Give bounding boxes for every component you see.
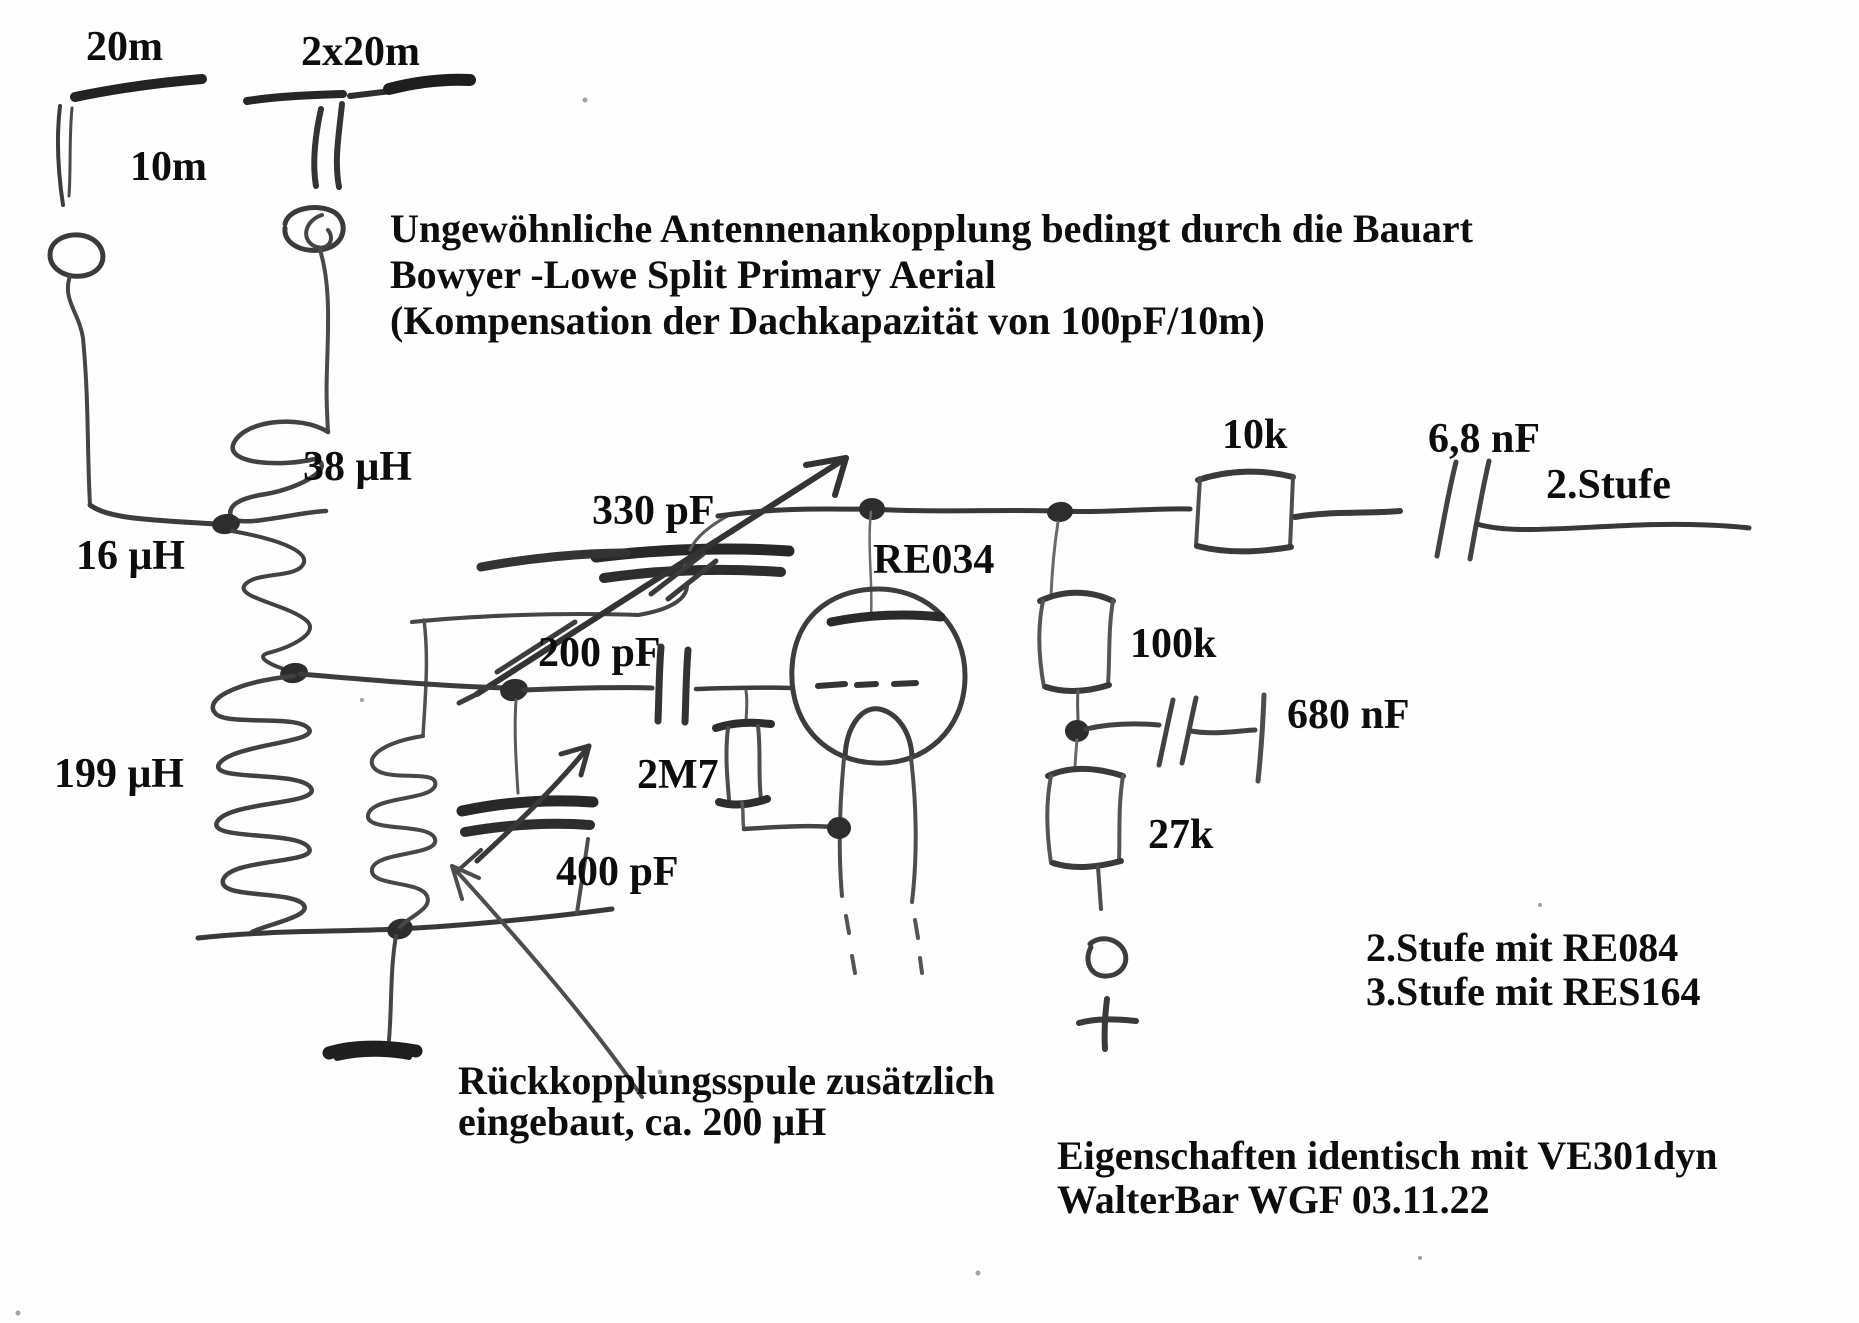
coil-199uH-winding (213, 676, 312, 932)
res-2M7-wire-to-cathode (744, 826, 832, 829)
scanned-schematic-page: 20m 2x20m 10m Ungewöhnliche Antennenanko… (0, 0, 1859, 1323)
res-10k-right (1290, 477, 1293, 548)
cap-200pF-plate-right (685, 650, 688, 722)
res-10k-left (1196, 478, 1200, 546)
junction-dot (860, 499, 884, 519)
title-block: Ungewöhnliche Antennenankopplung bedingt… (390, 206, 1473, 344)
label-res-2M7: 2M7 (637, 754, 719, 796)
label-coil-38uH: 38 μH (303, 446, 412, 488)
label-antenna-20m: 20m (86, 26, 163, 68)
title-line-2: Bowyer -Lowe Split Primary Aerial (390, 252, 1473, 298)
junction-dot (828, 818, 850, 838)
insulator-right-curl (306, 215, 331, 248)
cap-400pF-plate-bottom (465, 824, 590, 832)
res-27k-right (1119, 776, 1123, 861)
cap-400pF-lead-top (515, 700, 518, 793)
label-cap-680nF: 680 nF (1287, 694, 1410, 736)
res-2M7-cap-top (716, 723, 771, 728)
anode-lead (870, 512, 872, 616)
paper-speck (16, 1311, 21, 1316)
paper-speck (1538, 903, 1542, 907)
insulator-left-icon (50, 235, 103, 276)
title-line-1: Ungewöhnliche Antennenankopplung bedingt… (390, 206, 1473, 252)
feedback-coil-note: Rückkopplungsspule zusätzlich eingebaut,… (458, 1060, 995, 1142)
paper-speck (976, 1271, 981, 1276)
feedback-note-line-1: Rückkopplungsspule zusätzlich (458, 1060, 995, 1101)
filament-leg-dashes (846, 916, 922, 973)
tube-filament (845, 709, 912, 758)
stage-tubes-note: 2.Stufe mit RE084 3.Stufe mit RES164 (1366, 926, 1700, 1014)
label-res-10k: 10k (1222, 414, 1287, 456)
label-cap-200pF: 200 pF (538, 632, 661, 674)
battery-terminal-icon (1088, 939, 1126, 976)
filament-leg-right (911, 758, 916, 902)
res-27k-left (1047, 776, 1051, 863)
antenna-20m-leadin (68, 276, 90, 505)
antenna-split-stroke-2 (337, 104, 342, 187)
feedback-coil-winding (368, 736, 436, 927)
antenna-2x20m-bar-right (389, 80, 470, 89)
res-2M7-lead-bottom (742, 803, 744, 829)
label-antenna-2x20m: 2x20m (301, 31, 420, 73)
cap-680nF-wire-left (1086, 724, 1159, 729)
label-tube-RE034: RE034 (873, 539, 994, 581)
battery-plus-icon (1079, 999, 1136, 1049)
res-10k-top (1198, 472, 1293, 480)
res-100k-left (1039, 601, 1044, 687)
junction-dot (1047, 501, 1073, 522)
grid-wire-left (300, 674, 506, 688)
res-2M7-side-right (758, 726, 761, 799)
antenna-20m-leadin-bend (90, 505, 216, 524)
label-antenna-10m: 10m (130, 146, 207, 188)
coil-16uH-winding (232, 531, 310, 671)
title-line-3: (Kompensation der Dachkapazität von 100p… (390, 298, 1473, 344)
label-cap-400pF: 400 pF (556, 851, 679, 893)
res-2M7-side-left (726, 728, 729, 799)
label-cap-6n8: 6,8 nF (1428, 418, 1540, 460)
feedback-note-line-2: eingebaut, ca. 200 μH (458, 1101, 995, 1142)
stage2-tube-note: 2.Stufe mit RE084 (1366, 926, 1700, 970)
ground-bar-icon-2 (337, 1054, 409, 1058)
label-coil-16uH: 16 μH (76, 535, 185, 577)
cap-680nF-symbol (1086, 695, 1264, 781)
label-cap-330pF: 330 pF (592, 490, 715, 532)
antenna-20m-downlead-2 (69, 108, 72, 196)
wire-to-stage2 (1477, 524, 1749, 530)
res-27k-symbol (1047, 740, 1136, 1049)
stage3-tube-note: 3.Stufe mit RES164 (1366, 970, 1700, 1014)
res-100k-lead-top (1051, 522, 1058, 596)
label-stage2-out: 2.Stufe (1546, 464, 1671, 506)
antenna-split-stroke-1 (314, 109, 321, 186)
feedback-coil-lead (423, 620, 426, 736)
antenna-20m-wire-bar (75, 79, 202, 97)
res-27k-lead-bottom (1098, 867, 1101, 909)
antenna-20m-downlead (58, 106, 63, 205)
cap-400pF-plate-top (462, 801, 593, 811)
res-100k-right (1108, 601, 1113, 684)
signature-note: WalterBar WGF 03.11.22 (1057, 1178, 1717, 1222)
paper-speck (360, 698, 364, 702)
cap-680nF-wire-right (1191, 730, 1255, 733)
cap-6n8-plate-right (1470, 461, 1489, 559)
antenna-2x20m-leadin (320, 250, 328, 432)
grid-wire-mid (524, 688, 652, 690)
paper-speck (1418, 1256, 1422, 1260)
ground-branch (198, 909, 612, 1058)
res-100k-symbol (1039, 522, 1113, 741)
tube-RE034-symbol (696, 589, 965, 973)
cap-6n8-plate-left (1437, 462, 1456, 556)
antenna-2x20m-bar-left (247, 94, 343, 101)
ground-lead (389, 936, 396, 1040)
label-res-27k: 27k (1148, 814, 1213, 856)
cap-680nF-plate-left (1159, 700, 1173, 765)
coil-16uH-symbol (232, 531, 310, 684)
credit-note: Eigenschaften identisch mit VE301dyn Wal… (1057, 1134, 1717, 1222)
cap-680nF-terminal (1258, 695, 1264, 781)
tube-grid-dashes (818, 683, 916, 686)
res-100k-top (1040, 593, 1113, 601)
res-10k-bottom (1197, 546, 1291, 551)
properties-note: Eigenschaften identisch mit VE301dyn (1057, 1134, 1717, 1178)
res-2M7-symbol (716, 691, 850, 838)
label-coil-199uH: 199 μH (54, 753, 184, 795)
res-27k-top (1048, 769, 1123, 776)
top-wire (718, 509, 1190, 516)
label-res-100k: 100k (1130, 623, 1216, 665)
coil-199uH-symbol (213, 676, 312, 932)
res-10k-lead-right (1295, 511, 1400, 517)
res-27k-bottom (1053, 861, 1121, 867)
tube-plate (831, 615, 941, 622)
paper-speck (583, 98, 588, 103)
grid-lead (696, 688, 792, 689)
res-10k-symbol (1196, 472, 1400, 552)
